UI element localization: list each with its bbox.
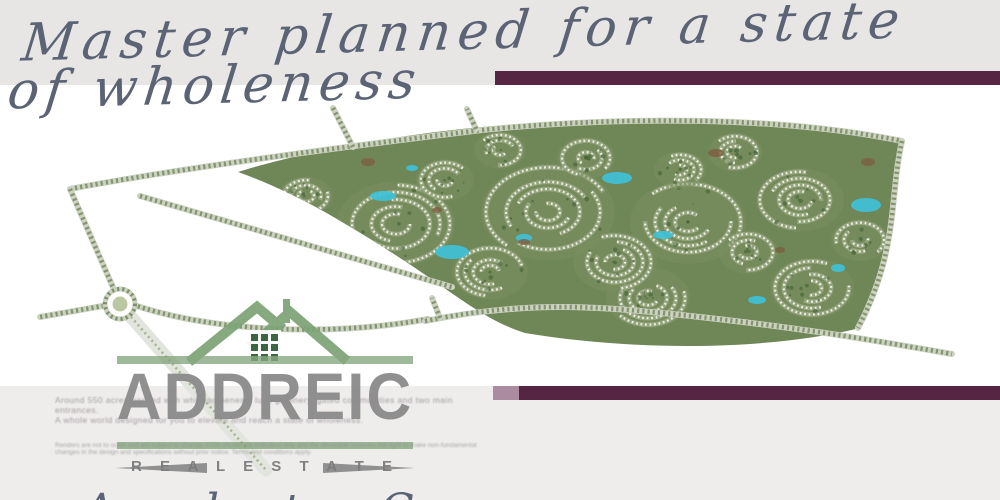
disclaimer-text: Renders are not to scale and are subject… xyxy=(55,442,485,456)
fragment-letter: C xyxy=(380,485,414,500)
house-icon xyxy=(189,299,347,363)
fragment-letter: l xyxy=(205,485,219,500)
brand-tagline: R E A L E S T A T E xyxy=(105,458,425,475)
fragment-letter: t xyxy=(283,485,301,500)
fragment-letter: A xyxy=(83,485,115,500)
brand-name: ADDREIC xyxy=(105,360,425,435)
headline-line-2: of wholeness xyxy=(5,50,425,121)
header-accent-bar xyxy=(495,71,1000,85)
footer-accent-bar-lead xyxy=(493,386,519,400)
brochure-page: Around 550 acres packed with wholesomene… xyxy=(0,0,1000,500)
bottom-script-fragment: A l t C xyxy=(55,481,475,500)
footer-accent-bar xyxy=(493,386,1000,400)
